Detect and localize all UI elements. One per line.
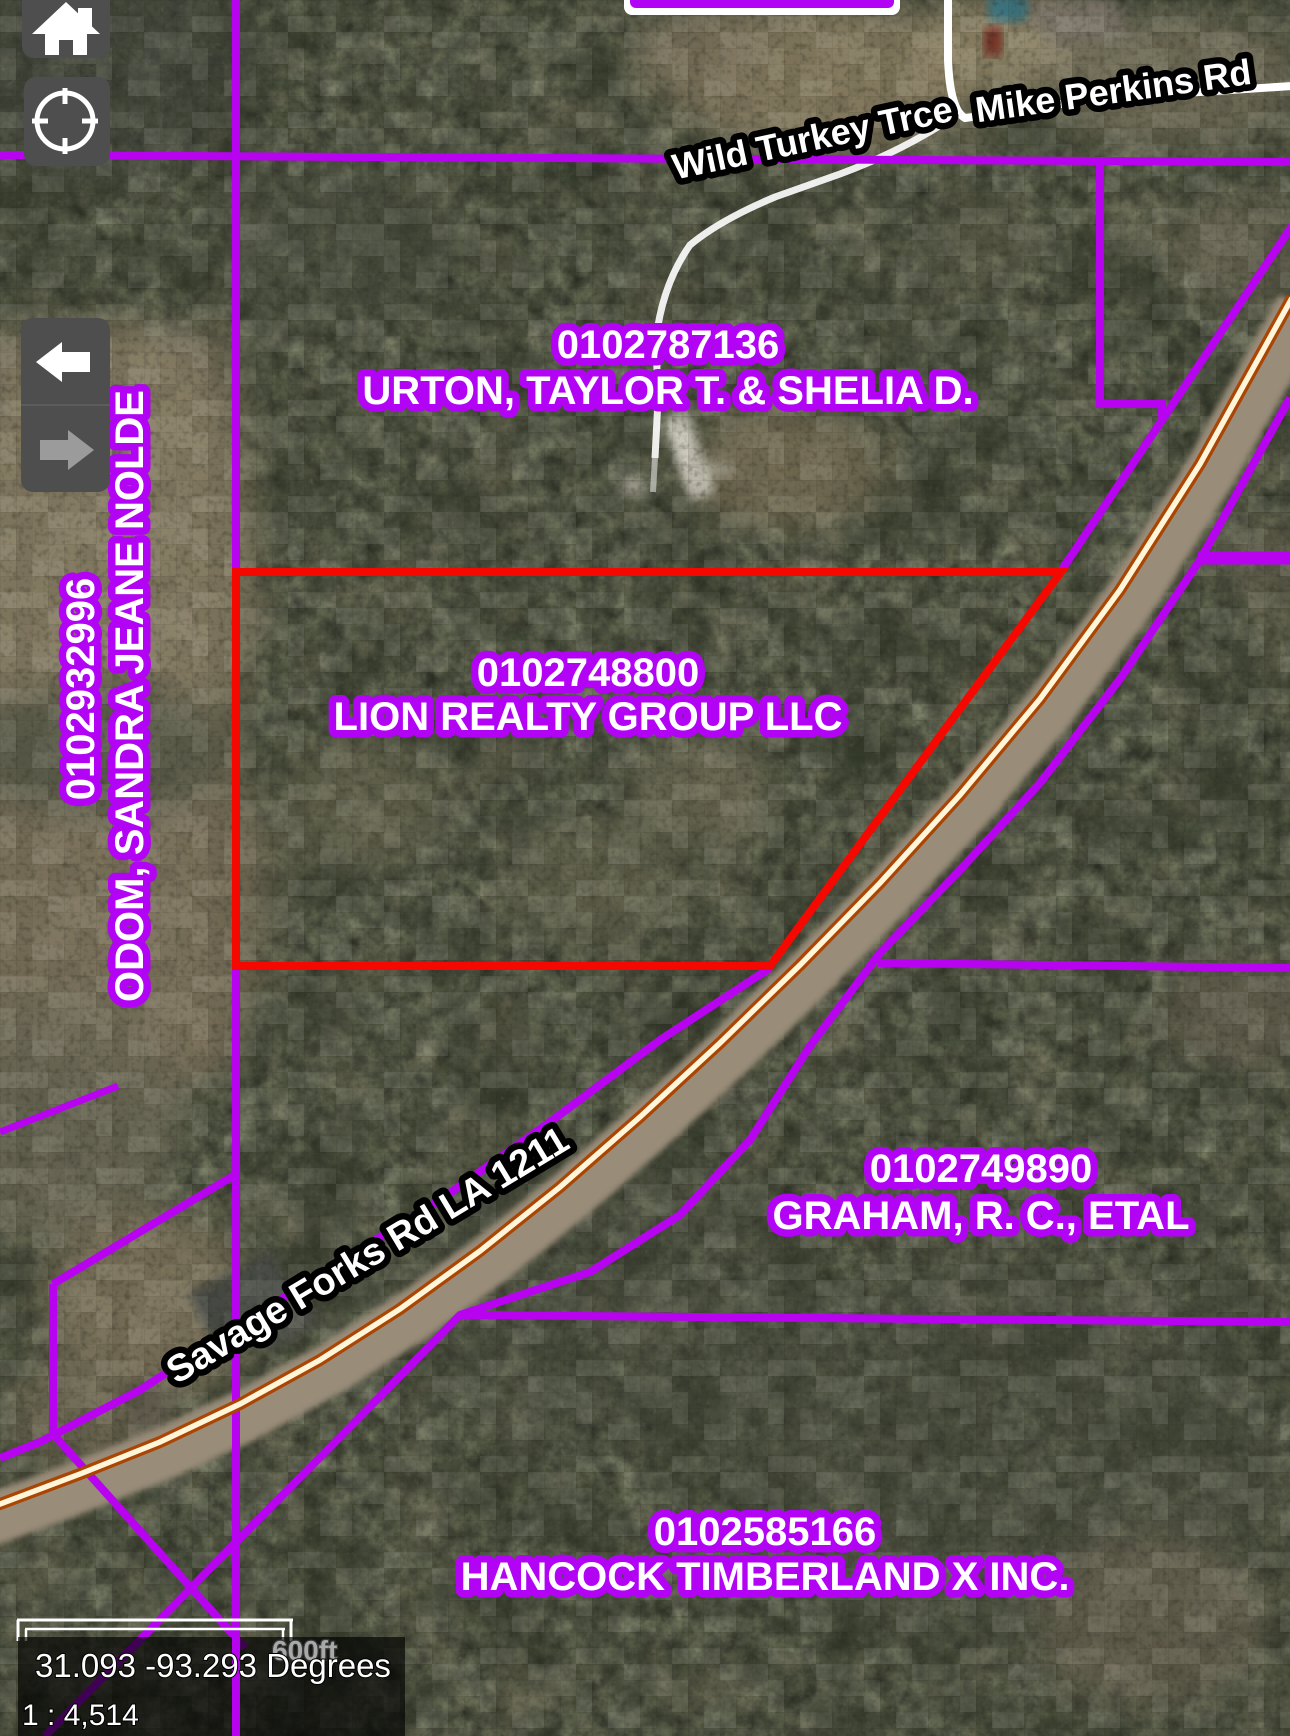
svg-text:LION REALTY GROUP LLC: LION REALTY GROUP LLC xyxy=(334,695,843,739)
svg-text:1 : 4,514: 1 : 4,514 xyxy=(22,1699,139,1732)
svg-text:ODOM, SANDRA JEANE NOLDE: ODOM, SANDRA JEANE NOLDE xyxy=(108,390,152,1002)
svg-text:0102748800: 0102748800 xyxy=(477,651,699,695)
svg-text:URTON, TAYLOR T. & SHELIA D.: URTON, TAYLOR T. & SHELIA D. xyxy=(362,369,973,413)
svg-text:31.093 -93.293 Degrees: 31.093 -93.293 Degrees xyxy=(35,1647,391,1684)
svg-text:0102932996: 0102932996 xyxy=(59,578,103,800)
svg-text:0102585166: 0102585166 xyxy=(654,1510,876,1554)
svg-text:GRAHAM, R. C., ETAL: GRAHAM, R. C., ETAL xyxy=(772,1194,1189,1238)
svg-text:0102787136: 0102787136 xyxy=(557,323,779,367)
svg-text:0102749890: 0102749890 xyxy=(870,1147,1092,1191)
svg-text:HANCOCK TIMBERLAND X INC.: HANCOCK TIMBERLAND X INC. xyxy=(461,1555,1070,1599)
